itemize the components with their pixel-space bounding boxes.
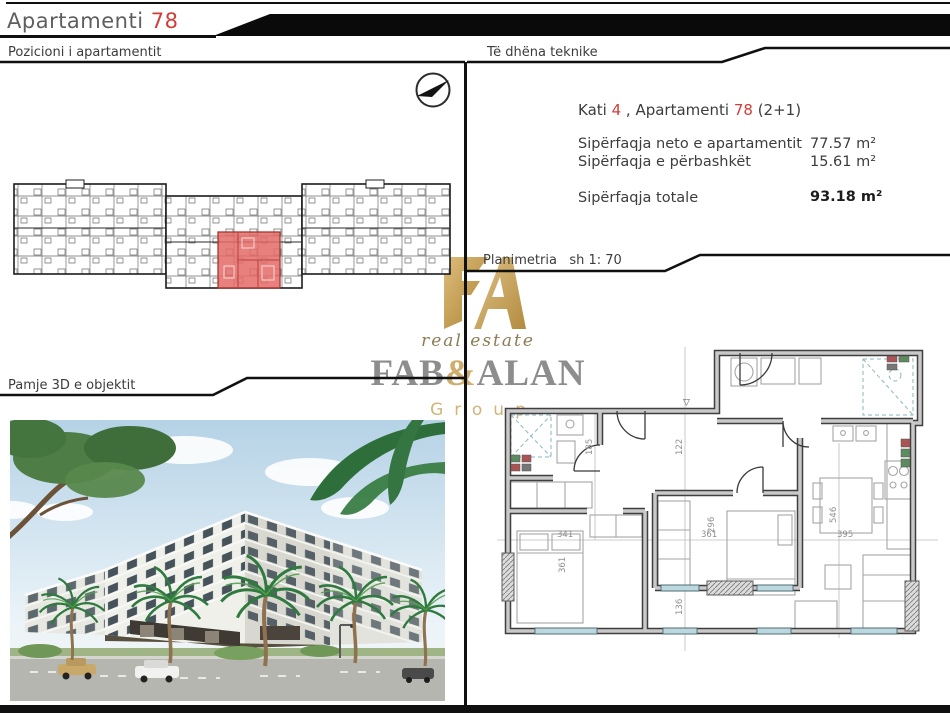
dim-136: 136 (675, 599, 685, 615)
apartment-number: 78 (151, 9, 179, 33)
bottom-border-bar (0, 705, 950, 713)
dim-361-v: 361 (558, 557, 568, 573)
section-technical-label: Të dhëna teknike (487, 45, 598, 60)
plan-scale-text: sh 1: 70 (569, 253, 621, 268)
shared-area-value: 15.61 m² (810, 154, 876, 170)
apartment-floor-plan: 185 122 341 361 361 296 136 395 546 ▽ (495, 343, 940, 655)
north-arrow-icon (411, 68, 455, 112)
total-area-label: Sipërfaqja totale (578, 190, 698, 206)
title-black-bar (213, 14, 950, 36)
dim-395: 395 (837, 530, 853, 540)
section-view3d-label: Pamje 3D e objektit (8, 378, 135, 393)
section-position-label: Pozicioni i apartamentit (8, 45, 162, 60)
dim-185: 185 (585, 439, 595, 455)
plan-label-text: Planimetria (483, 253, 557, 268)
net-area-value: 77.57 m² (810, 136, 876, 152)
shared-area-label: Sipërfaqja e përbashkët (578, 154, 751, 170)
net-area-label: Sipërfaqja neto e apartamentit (578, 136, 802, 152)
title-underline (0, 35, 216, 38)
apartment-value: 78 (734, 101, 753, 119)
top-border-line (6, 2, 950, 4)
floor-value: 4 (612, 101, 622, 119)
dim-122: 122 (675, 439, 685, 455)
page-title: Apartamenti 78 (7, 9, 178, 33)
dim-296: 296 (707, 517, 717, 533)
apartment-summary-line: Kati 4 , Apartamenti 78 (2+1) (578, 101, 801, 119)
apartment-label: , Apartamenti (621, 101, 734, 119)
apartment-type: (2+1) (753, 101, 801, 119)
page-title-text: Apartamenti (7, 9, 144, 33)
section-plan-label: Planimetria sh 1: 70 (483, 253, 622, 268)
total-area-value: 93.18 m² (810, 189, 882, 205)
dim-546: 546 (829, 507, 839, 523)
building-position-diagram (6, 166, 458, 294)
building-3d-render (10, 420, 445, 701)
entry-marker: ▽ (683, 398, 690, 408)
floor-label: Kati (578, 101, 607, 119)
highlighted-apartment (218, 232, 280, 288)
dim-341: 341 (557, 530, 573, 540)
brochure-page: Apartamenti 78 Pozicioni i apartamentit … (0, 0, 950, 713)
